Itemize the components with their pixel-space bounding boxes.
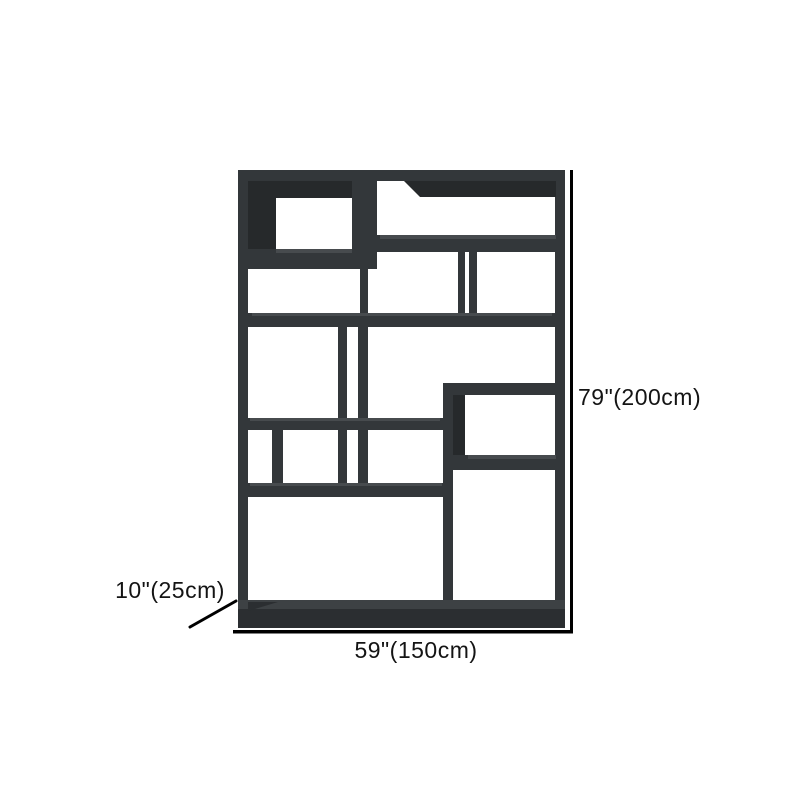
width-dimension-label: 59"(150cm) (354, 637, 477, 663)
width-dimension-line (233, 630, 573, 634)
divider-middle-back (358, 327, 368, 483)
divider-upper-right-back (469, 252, 477, 313)
top-left-box (240, 181, 377, 269)
top-panel-underside (420, 181, 556, 197)
depth-dimension-label: 10"(25cm) (115, 577, 225, 603)
divider-left-short (272, 430, 283, 483)
shelf-level-2-highlight (380, 235, 556, 239)
divider-under-box (360, 263, 368, 313)
bookcase-base (238, 600, 565, 628)
height-dimension-line (570, 170, 573, 632)
depth-pointer-line (190, 601, 236, 627)
divider-upper-right-front (458, 252, 465, 313)
shelf-level-5-highlight (250, 483, 442, 486)
upper-shelves (238, 235, 565, 327)
base-front-face (238, 609, 565, 628)
divider-middle-front (338, 327, 347, 483)
box-bottom-highlight (276, 249, 352, 253)
right-box-top (443, 383, 556, 395)
frame-right-upright (555, 170, 565, 628)
divider-right-tall (443, 383, 453, 601)
middle-shelves (238, 327, 445, 497)
right-box (443, 383, 556, 601)
shelf-level-4-highlight (250, 418, 440, 421)
product-dimension-diagram: 79"(200cm) 59"(150cm) 10"(25cm) (0, 0, 800, 800)
right-box-inner-wall (453, 395, 465, 457)
right-box-bottom-highlight (468, 455, 556, 459)
height-dimension-label: 79"(200cm) (578, 384, 701, 410)
bookcase-illustration: 79"(200cm) 59"(150cm) 10"(25cm) (0, 0, 800, 800)
shelf-level-3-highlight (252, 313, 552, 316)
frame-top-panel (238, 170, 565, 181)
top-panel-underside-wedge (404, 181, 420, 197)
frame-left-upright (238, 170, 248, 628)
